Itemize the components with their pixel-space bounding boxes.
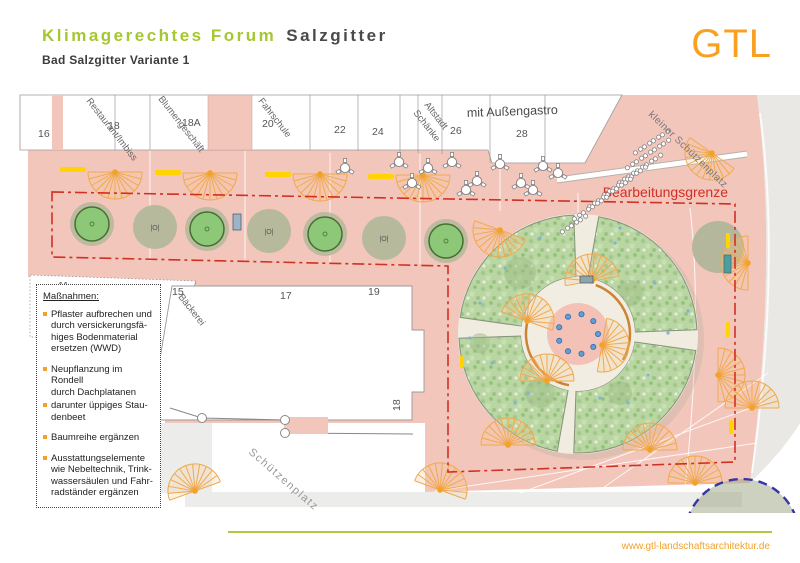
bullet-icon: [43, 403, 47, 407]
measure-text: Pflaster aufbrechen und durch versickeru…: [51, 309, 152, 355]
bench-icon: [233, 214, 241, 230]
title-secondary: Salzgitter: [286, 26, 388, 45]
water-column-icon: [724, 255, 731, 273]
measure-text: Neupflanzung im Rondell durch Dachplatan…: [51, 364, 154, 399]
bullet-icon: [43, 435, 47, 439]
existing-tree-icon: |O|: [150, 225, 159, 232]
building-number: 16: [38, 128, 50, 140]
footer-divider: [228, 531, 772, 533]
existing-tree-icon: |O|: [379, 236, 388, 243]
measure-item: Ausstattungselemente wie Nebeltechnik, T…: [43, 453, 154, 499]
page-title: Klimagerechtes ForumSalzgitter: [42, 26, 388, 46]
building-number: 18: [391, 399, 403, 411]
building-number: 17: [280, 290, 292, 302]
building-number: 28: [516, 128, 528, 140]
slide-header: Klimagerechtes ForumSalzgitter Bad Salzg…: [42, 26, 388, 67]
measure-item: Baumreihe ergänzen: [43, 432, 154, 444]
existing-tree-icon: |O|: [264, 229, 273, 236]
measure-item: darunter üppiges Stau- denbeet: [43, 400, 154, 423]
gtl-logo: GTL: [691, 22, 772, 67]
bullet-icon: [43, 312, 47, 316]
building-number: 24: [372, 126, 384, 138]
measures-box: Maßnahmen: Pflaster aufbrechen und durch…: [36, 284, 161, 508]
measure-text: Baumreihe ergänzen: [51, 432, 139, 444]
measures-title: Maßnahmen:: [43, 291, 154, 303]
title-main: Klimagerechtes Forum: [42, 26, 276, 45]
bullet-icon: [43, 456, 47, 460]
measure-text: Ausstattungselemente wie Nebeltechnik, T…: [51, 453, 153, 499]
water-column-icon: [580, 276, 593, 283]
measure-text: darunter üppiges Stau- denbeet: [51, 400, 148, 423]
building-number: 26: [450, 125, 462, 137]
page-subtitle: Bad Salzgitter Variante 1: [42, 53, 388, 67]
website-url: www.gtl-landschaftsarchitektur.de: [622, 541, 770, 552]
slide: Klimagerechtes ForumSalzgitter Bad Salzg…: [0, 0, 800, 563]
measure-item: Neupflanzung im Rondell durch Dachplatan…: [43, 364, 154, 399]
building-number: 22: [334, 124, 346, 136]
bullet-icon: [43, 367, 47, 371]
building-number: 19: [368, 286, 380, 298]
measure-item: Pflaster aufbrechen und durch versickeru…: [43, 309, 154, 355]
